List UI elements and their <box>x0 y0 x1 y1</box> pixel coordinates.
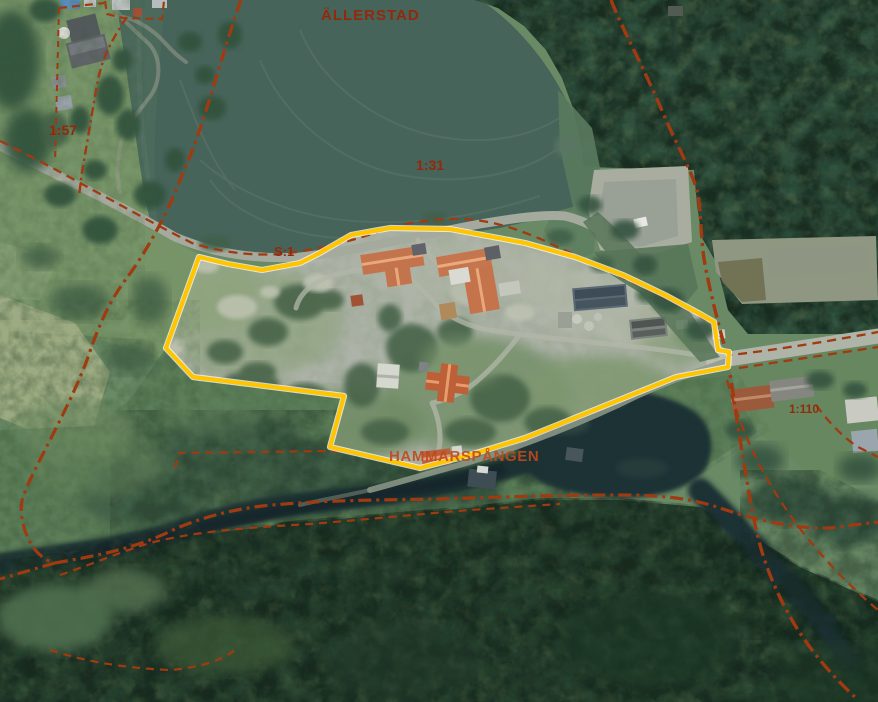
svg-text:ÄLLERSTAD: ÄLLERSTAD <box>321 7 420 24</box>
svg-text:HAMMARSPÅNGEN: HAMMARSPÅNGEN <box>389 448 539 465</box>
svg-text:1:31: 1:31 <box>416 157 444 173</box>
svg-text:S:1: S:1 <box>274 244 294 259</box>
svg-text:1:57: 1:57 <box>49 122 77 138</box>
svg-text:1:110: 1:110 <box>789 402 819 416</box>
